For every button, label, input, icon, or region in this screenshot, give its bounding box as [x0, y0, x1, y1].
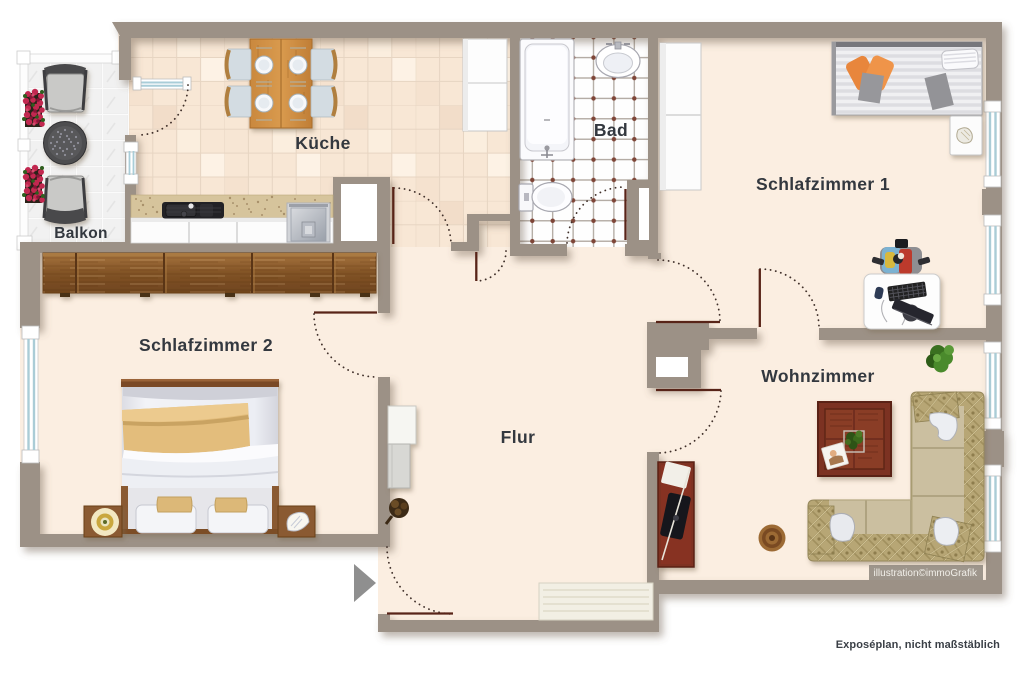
- svg-text:Wohnzimmer: Wohnzimmer: [761, 366, 875, 386]
- svg-text:illustration©immoGrafik: illustration©immoGrafik: [873, 568, 978, 579]
- svg-text:Schlafzimmer 2: Schlafzimmer 2: [139, 335, 273, 355]
- svg-text:Exposéplan, nicht maßstäblich: Exposéplan, nicht maßstäblich: [836, 639, 1000, 651]
- svg-text:Balkon: Balkon: [54, 225, 107, 242]
- svg-text:Flur: Flur: [501, 427, 536, 447]
- svg-text:Schlafzimmer 1: Schlafzimmer 1: [756, 174, 890, 194]
- svg-text:Küche: Küche: [295, 133, 350, 153]
- svg-text:Bad: Bad: [594, 120, 628, 140]
